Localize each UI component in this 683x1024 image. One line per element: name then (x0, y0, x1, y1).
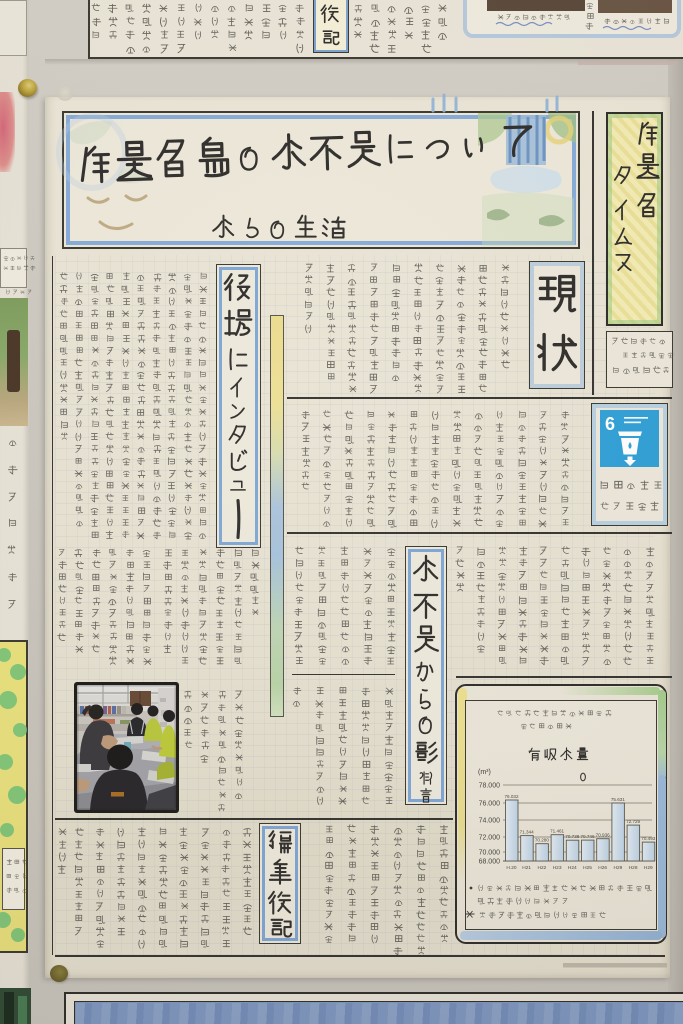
svg-text:75.631: 75.631 (611, 797, 625, 802)
svg-text:72.729: 72.729 (626, 819, 640, 824)
svg-text:76.032: 76.032 (504, 794, 518, 799)
svg-text:72.000: 72.000 (479, 835, 501, 842)
svg-text:H22: H22 (537, 865, 546, 871)
svg-text:H26: H26 (598, 865, 607, 871)
svg-text:70.746: 70.746 (580, 834, 594, 839)
svg-text:H.20: H.20 (506, 865, 516, 871)
svg-text:76.000: 76.000 (479, 801, 501, 808)
svg-text:70.493: 70.493 (641, 836, 655, 841)
svg-text:H29: H29 (644, 865, 653, 871)
svg-text:68.000: 68.000 (479, 859, 501, 866)
svg-text:H21: H21 (522, 865, 531, 871)
svg-text:71.461: 71.461 (550, 829, 564, 834)
svg-text:74.000: 74.000 (479, 818, 501, 825)
svg-text:H28: H28 (629, 865, 638, 871)
svg-text:70.000: 70.000 (479, 850, 501, 857)
svg-text:78.000: 78.000 (479, 783, 501, 790)
svg-text:(m³): (m³) (478, 769, 491, 776)
svg-text:70.738: 70.738 (565, 834, 579, 839)
svg-text:H25: H25 (583, 865, 592, 871)
svg-text:6: 6 (605, 414, 615, 434)
svg-text:H24: H24 (568, 865, 577, 871)
svg-text:70.280: 70.280 (535, 838, 549, 843)
svg-text:H29: H29 (613, 865, 622, 871)
svg-text:H23: H23 (553, 865, 562, 871)
svg-text:71.344: 71.344 (520, 830, 534, 835)
svg-text:70.936: 70.936 (596, 833, 610, 838)
